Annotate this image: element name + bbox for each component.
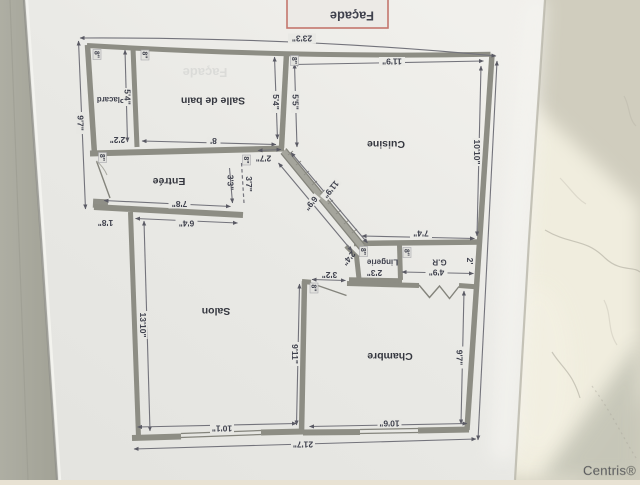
svg-text:23'3": 23'3" [292,34,312,44]
svg-text:Entrée: Entrée [153,175,186,187]
svg-text:3'7": 3'7" [244,176,254,192]
svg-text:4'9": 4'9" [429,268,445,278]
svg-text:8": 8" [141,51,148,58]
svg-text:2'7": 2'7" [256,154,272,164]
svg-text:8": 8" [359,248,366,255]
svg-text:8": 8" [93,51,100,58]
svg-text:8": 8" [403,249,410,256]
svg-text:Cuisine: Cuisine [367,138,405,150]
svg-text:2'2": 2'2" [110,135,126,145]
svg-text:3'3": 3'3" [226,175,236,191]
svg-text:8": 8" [98,154,105,161]
svg-text:Salon: Salon [202,305,231,317]
svg-text:8": 8" [310,284,317,291]
svg-text:5'4": 5'4" [271,94,281,110]
svg-text:3'2": 3'2" [322,270,338,280]
svg-text:9'7": 9'7" [76,115,86,131]
svg-text:Centris®: Centris® [583,463,636,478]
svg-text:G.R: G.R [432,258,446,267]
svg-text:10'10": 10'10" [472,140,482,165]
svg-text:6'4": 6'4" [179,219,195,229]
svg-text:Salle de bain: Salle de bain [181,95,245,107]
svg-text:Chambre: Chambre [367,350,413,362]
svg-text:Placard: Placard [97,95,125,104]
svg-text:2': 2' [465,258,475,265]
svg-text:8": 8" [290,57,297,64]
svg-text:10'6": 10'6" [379,419,399,429]
svg-text:Façade: Façade [330,9,374,24]
svg-text:8': 8' [210,136,217,146]
svg-text:9'11": 9'11" [290,344,300,364]
svg-text:8": 8" [242,156,249,163]
svg-text:13'10": 13'10" [138,313,148,338]
svg-text:Façade: Façade [183,65,228,80]
svg-text:Lingerie: Lingerie [366,258,398,267]
svg-text:11'9": 11'9" [382,57,402,67]
svg-text:21'7": 21'7" [293,440,313,450]
svg-text:5'5": 5'5" [291,94,301,110]
svg-text:10'1": 10'1" [212,424,232,434]
svg-text:1'8": 1'8" [98,218,114,228]
svg-text:5'4": 5'4" [123,89,133,105]
svg-text:7'4": 7'4" [413,229,429,239]
svg-text:9'7": 9'7" [455,350,465,366]
svg-text:7'8": 7'8" [172,199,188,209]
svg-text:2'3": 2'3" [367,268,383,278]
